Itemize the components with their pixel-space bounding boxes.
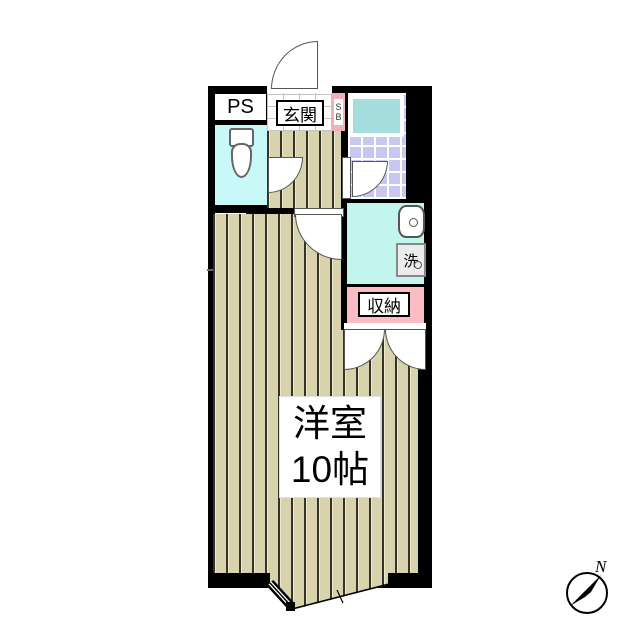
main-room-type-label: 洋室 [293,401,367,447]
washing-machine-icon: 洗 [396,243,426,277]
shoe-box-label-top: S [335,102,341,112]
sink-icon [398,205,425,238]
bathroom-door-leaf [342,157,351,199]
washer-dial-icon [414,261,422,269]
compass-circle-icon [567,573,607,613]
bathtub-icon [349,95,404,137]
compass-arrow-icon [570,575,601,606]
pipe-space-box: PS [213,92,268,122]
floorplan-canvas: PS 玄関 S B 洗 収納 [0,0,640,640]
entrance-door-swing [271,41,318,89]
main-room-size-label: 10帖 [291,447,369,493]
compass-north-label: N [594,557,608,576]
main-room-label-box: 洋室 10帖 [279,396,381,498]
closet-label: 収納 [367,292,401,317]
sink-drain-icon [409,218,418,227]
shoe-box-label-box: S B [334,99,343,125]
entrance-label-box: 玄関 [276,100,324,126]
entrance-label: 玄関 [283,101,317,126]
pipe-space-label: PS [227,96,254,119]
closet-label-box: 収納 [358,292,410,317]
shoe-box-label-bottom: B [335,112,341,122]
